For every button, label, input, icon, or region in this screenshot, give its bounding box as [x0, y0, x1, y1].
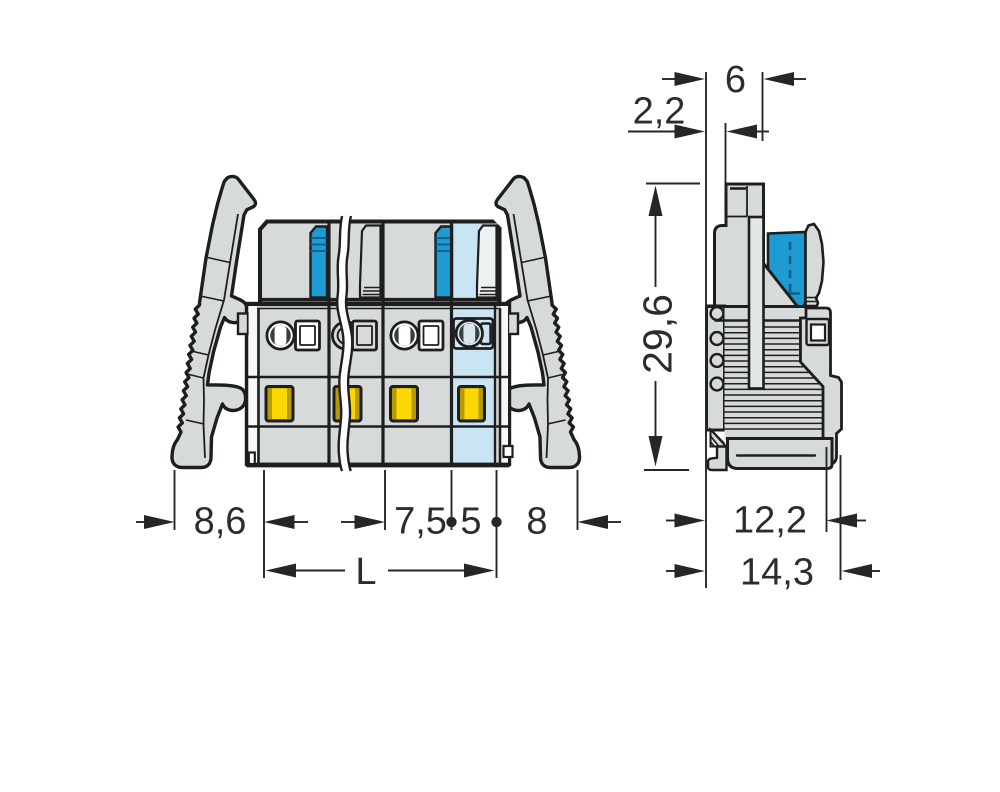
svg-text:5: 5	[460, 501, 481, 543]
svg-text:29,6: 29,6	[635, 294, 681, 374]
svg-text:8,6: 8,6	[194, 501, 247, 543]
svg-text:8: 8	[526, 501, 547, 543]
svg-text:12,2: 12,2	[733, 500, 807, 542]
svg-text:7,5: 7,5	[394, 501, 447, 543]
svg-text:6: 6	[725, 59, 746, 101]
svg-text:2,2: 2,2	[633, 91, 686, 133]
svg-text:L: L	[355, 551, 376, 593]
svg-text:14,3: 14,3	[740, 552, 814, 594]
